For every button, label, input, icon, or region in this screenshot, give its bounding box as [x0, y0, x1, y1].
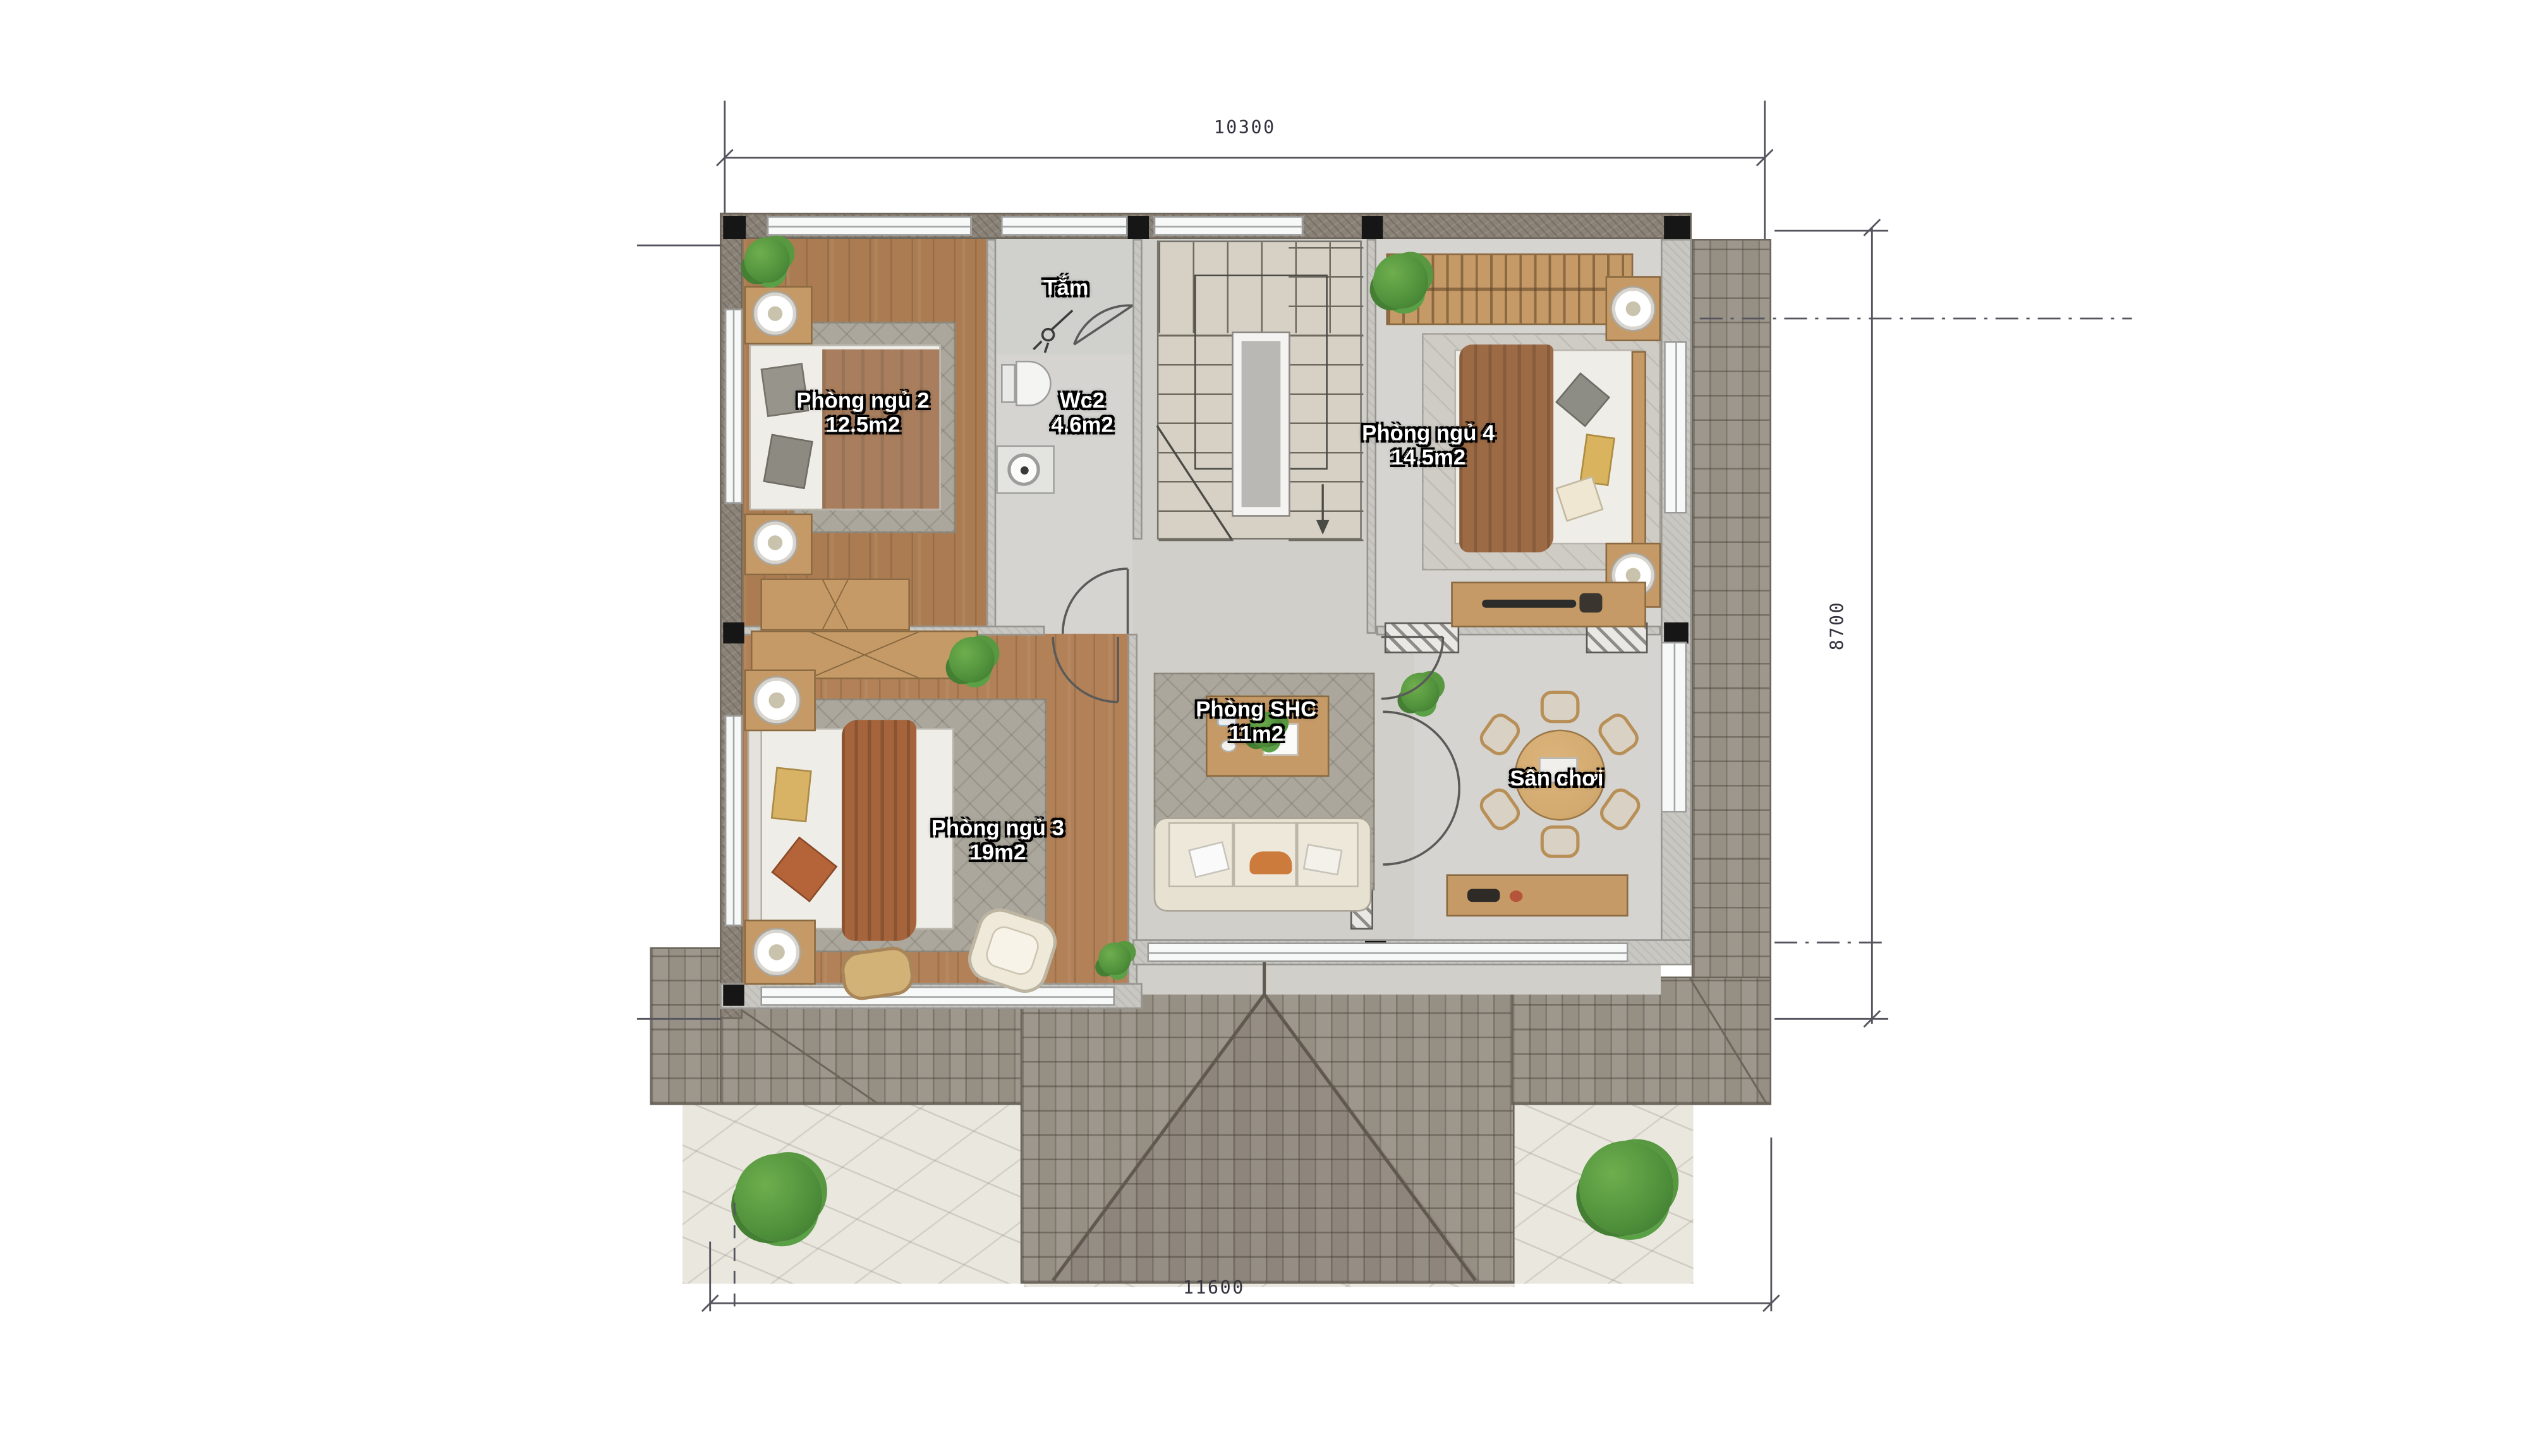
floorplan-stage: Phòng ngủ 2 12.5m2 Tắm Wc2 4.6m2 Phòng n… — [0, 0, 2548, 1456]
column-left-bottom — [723, 985, 744, 1005]
column-top-bath — [1128, 216, 1149, 239]
stairs-void — [1234, 333, 1289, 515]
bedroom3-pillow-orange — [771, 837, 837, 902]
room-label-wc2: Wc2 4.6m2 — [1051, 388, 1113, 437]
window-bedroom2-left — [725, 309, 743, 504]
bedroom3-bed — [749, 728, 954, 930]
dimension-top: 10300 — [1214, 117, 1276, 138]
room-label-bath: Tắm — [1043, 276, 1088, 300]
room-area: 11m2 — [1228, 722, 1283, 746]
roof-bottom-right — [1511, 976, 1771, 1105]
toilet-icon — [1001, 361, 1053, 406]
sofa-icon — [1154, 817, 1372, 911]
bedroom2-lamp-top-icon — [754, 293, 796, 335]
column-left-mid — [723, 622, 744, 643]
column-top-right — [1664, 216, 1690, 239]
room-label-shc: Phòng SHC 11m2 — [1196, 697, 1316, 746]
room-name: Wc2 — [1060, 388, 1105, 413]
playarea-plant-icon — [1401, 673, 1440, 712]
room-name: Tắm — [1043, 276, 1088, 300]
playarea-desk — [1447, 874, 1629, 916]
sink-drain — [1021, 466, 1029, 475]
column-top-stairs — [1362, 216, 1383, 239]
bedroom3-plant-top-icon — [949, 637, 995, 682]
bedroom2-plant-icon — [744, 237, 790, 282]
dimension-right: 8700 — [1827, 601, 1848, 650]
round-table-chair-top — [1541, 691, 1580, 723]
bedroom4-pillow-gray — [1555, 372, 1610, 427]
tree-bottom-left-icon — [734, 1154, 822, 1242]
wall-bath-right — [1132, 239, 1142, 540]
window-bedroom3-left — [725, 715, 743, 926]
room-area: 12.5m2 — [826, 413, 901, 437]
bedroom3-lamp-bottom-icon — [754, 930, 799, 975]
room-area: 14.5m2 — [1391, 446, 1465, 470]
column-top-left — [723, 216, 746, 239]
wall-bath-left — [986, 239, 996, 634]
dimension-bottom: 11600 — [1183, 1277, 1245, 1298]
living-corner-plant-icon — [1098, 942, 1131, 974]
room-name: Phòng ngủ 3 — [931, 816, 1064, 840]
room-name: Phòng ngủ 2 — [796, 388, 929, 413]
window-bedroom2-top — [767, 216, 972, 236]
bedroom4-desk — [1451, 582, 1646, 628]
bedroom3-pillow-yellow — [771, 767, 812, 823]
hatch-wall-bedroom4-a — [1385, 622, 1459, 653]
bedroom2-pillow-2 — [763, 434, 813, 489]
room-name: Phòng ngủ 4 — [1362, 421, 1495, 446]
roof-right-strip — [1692, 239, 1771, 1105]
roof-left-upper — [650, 947, 722, 1105]
roof-left-lower — [720, 1007, 1022, 1105]
tree-bottom-right-icon — [1579, 1141, 1673, 1235]
round-table-chair-bottom — [1541, 825, 1580, 858]
room-area: 4.6m2 — [1051, 413, 1113, 437]
room-area: 19m2 — [969, 840, 1026, 864]
bedroom2-lamp-bottom-icon — [754, 521, 796, 564]
bedroom3-headboard — [748, 730, 762, 931]
window-bath-top — [1001, 216, 1128, 236]
room-label-bedroom2: Phòng ngủ 2 12.5m2 — [796, 388, 929, 437]
bedroom2-dresser — [760, 578, 910, 630]
room-name: Sân chơi — [1510, 766, 1603, 791]
patio-left — [682, 1098, 1024, 1283]
bedroom3-blanket — [842, 720, 916, 941]
bedroom4-lamp-top-icon — [1612, 288, 1654, 330]
room-name: Phòng SHC — [1196, 697, 1316, 722]
bedroom3-lamp-top-icon — [754, 677, 799, 723]
sofa-pillow-orange — [1249, 851, 1292, 874]
window-stairs-top — [1154, 216, 1304, 236]
staircase — [1157, 241, 1362, 540]
room-label-bedroom4: Phòng ngủ 4 14.5m2 — [1362, 421, 1495, 470]
window-playarea-right — [1661, 642, 1687, 813]
bedroom4-headboard — [1632, 351, 1646, 546]
window-bedroom4-right — [1664, 341, 1687, 514]
bedroom4-tree-icon — [1373, 253, 1428, 308]
window-bedroom3-bottom — [760, 986, 1115, 1006]
room-label-playarea: Sân chơi — [1510, 766, 1603, 791]
column-right-mid — [1664, 622, 1689, 643]
room-label-bedroom3: Phòng ngủ 3 19m2 — [931, 816, 1064, 865]
window-living-bottom — [1147, 942, 1628, 962]
